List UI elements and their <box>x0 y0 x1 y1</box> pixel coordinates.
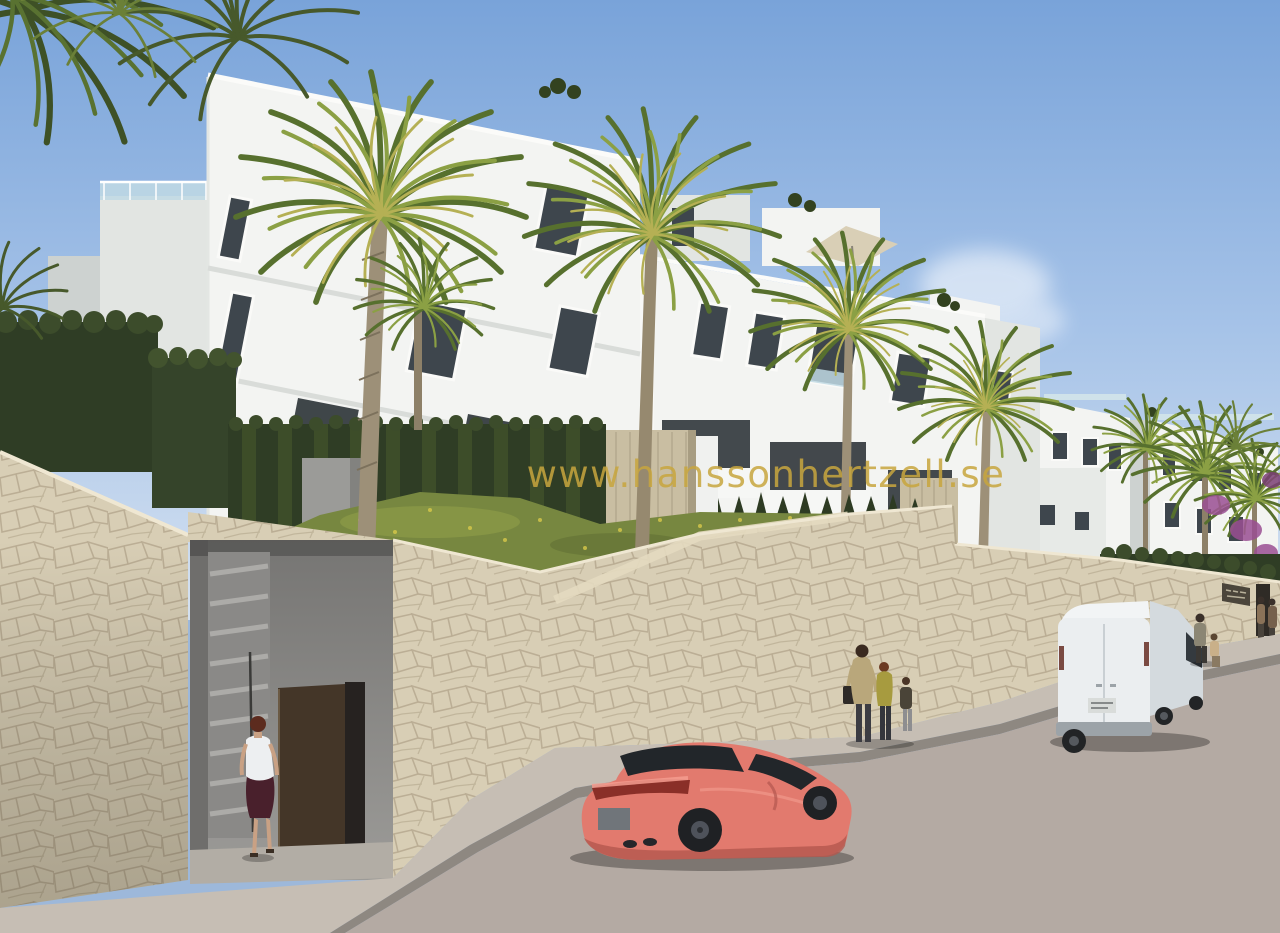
entrance-door <box>278 684 345 852</box>
architectural-render: www.hanssonhertzell.se <box>0 0 1280 933</box>
watermark-text: www.hanssonhertzell.se <box>527 453 1006 496</box>
door-gap <box>345 682 365 848</box>
glass-railing <box>100 182 210 200</box>
pedestrian-entrance <box>190 540 393 884</box>
